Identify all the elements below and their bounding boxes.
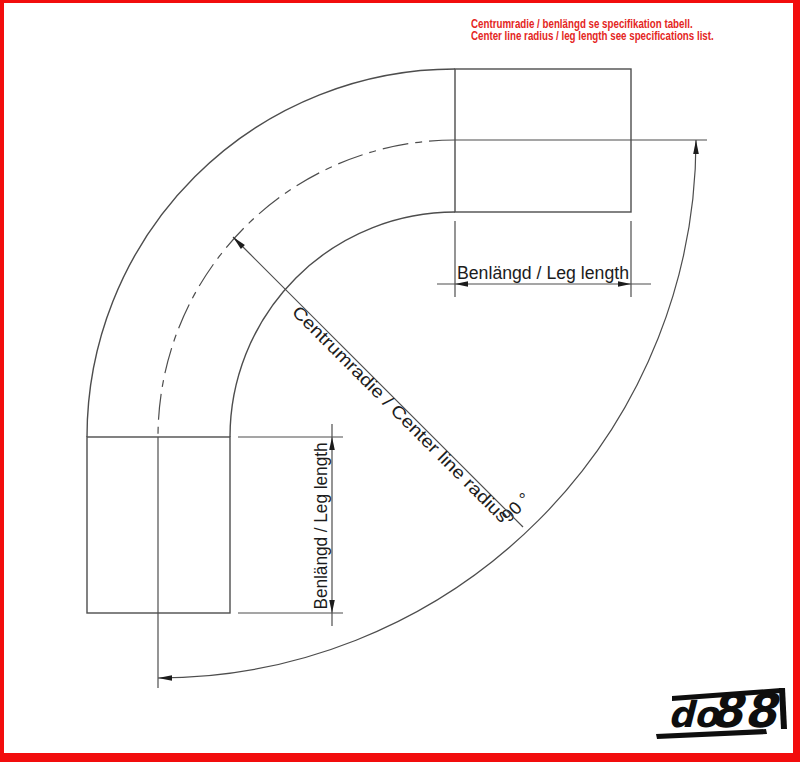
do88-logo: do 88	[656, 684, 788, 739]
angle-arrowhead-top	[693, 140, 699, 154]
pipe-inner-arc	[230, 212, 455, 437]
leg-length-top-dimension: Benlängd / Leg length	[437, 221, 651, 297]
spec-note-line-english: Center line radius / leg length see spec…	[471, 31, 714, 43]
leg-length-left-dimension: Benlängd / Leg length	[238, 424, 343, 626]
angle-dimension-arc	[158, 140, 696, 678]
leg-length-top-label: Benlängd / Leg length	[457, 263, 629, 283]
pipe-outer-arc	[87, 69, 455, 437]
logo-text-88: 88	[707, 684, 788, 738]
angle-arrowhead-bottom	[158, 675, 172, 681]
spec-note: Centrumradie / benlängd se specifikation…	[471, 19, 714, 42]
angle-dimension: 90 °	[158, 140, 699, 681]
leg-length-left-label: Benlängd / Leg length	[311, 443, 331, 610]
pipe-centerline-arc	[158, 140, 455, 437]
pipe-bend-drawing: 90 ° Centrumradie / Center line radius B…	[0, 0, 800, 762]
pipe-body	[87, 69, 707, 688]
